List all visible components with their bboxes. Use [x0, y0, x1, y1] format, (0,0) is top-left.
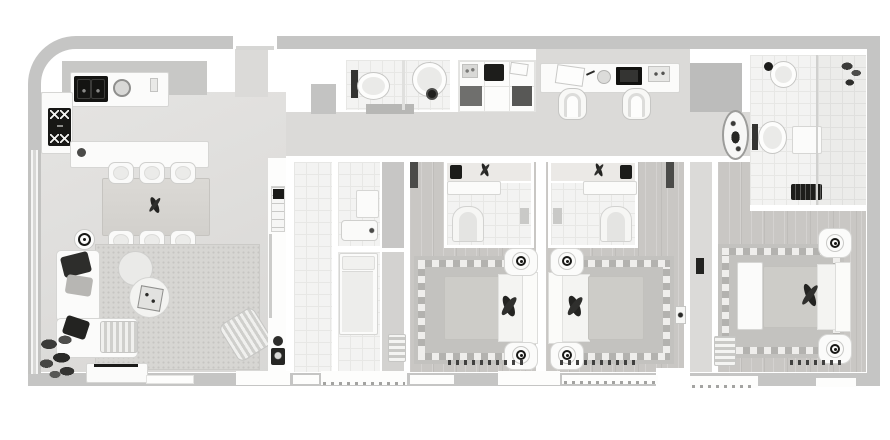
ensuite1-decor	[478, 164, 492, 176]
master-wall-switch	[696, 258, 704, 274]
dining-chair	[108, 162, 134, 184]
cooktop	[48, 108, 71, 146]
window-sill	[816, 378, 856, 387]
dining-chair	[170, 162, 196, 184]
bed2-flower-decor	[564, 294, 586, 318]
guest-toilet	[357, 72, 390, 100]
ensuite2-toilet	[600, 206, 632, 242]
bedroom2-wall-mirror	[666, 162, 674, 188]
floor-plan	[0, 0, 890, 440]
corridor-floor	[286, 112, 536, 156]
entry-floor	[235, 49, 268, 97]
master-foot-runner	[790, 360, 844, 365]
bed1-lamp-top	[512, 252, 530, 270]
window-sill	[410, 375, 454, 384]
bath-divider	[402, 60, 405, 110]
closet-small-items	[462, 64, 478, 78]
master-ladder-shelf	[714, 336, 736, 366]
closet-box-gray	[460, 86, 482, 106]
burner-icon	[60, 134, 69, 143]
bed1-flower-decor	[498, 294, 520, 318]
desk-laptop	[616, 67, 642, 85]
kitchen-small-item	[150, 78, 158, 92]
master-bath-wall	[750, 205, 866, 211]
sofa-pillow-gray	[65, 274, 94, 297]
living-plant	[34, 328, 84, 382]
sofa-ottoman	[100, 321, 138, 353]
ensuite2-sink	[620, 165, 632, 179]
window-sill	[236, 371, 290, 385]
master-bedside-bench	[737, 262, 763, 330]
bath-doormat	[366, 104, 414, 114]
sliding-door-track	[269, 234, 272, 318]
bed1-foot-runner	[448, 360, 528, 365]
shower-glass	[816, 55, 818, 205]
decor-tray	[137, 285, 164, 312]
desk-tray	[648, 66, 670, 82]
service-shaft	[690, 63, 742, 112]
guest-dark-stool	[426, 88, 438, 100]
desk-papers	[555, 64, 585, 87]
kitchen-sink	[74, 76, 108, 102]
burner-icon	[50, 134, 59, 143]
maid-bathtub	[341, 220, 378, 241]
master-basin	[770, 61, 797, 88]
maid-bed-blanket	[342, 271, 373, 332]
terrace-break	[656, 368, 690, 388]
window-sill	[293, 375, 319, 384]
shower-plants	[838, 56, 864, 90]
floor-lamp	[74, 229, 95, 250]
ensuite2-towel	[553, 208, 562, 224]
window-mullions	[692, 385, 756, 388]
table-centerpiece	[146, 197, 163, 213]
wall-device-box	[271, 348, 285, 365]
window-mullions	[564, 381, 656, 384]
island-faucet	[77, 148, 86, 157]
bedroom1-wall-mirror	[410, 162, 418, 188]
wall-device-round	[273, 336, 283, 346]
cooktop-control	[57, 125, 63, 127]
bed2-duvet	[588, 276, 644, 340]
ensuite1-towel	[520, 208, 529, 224]
master-lamp-top	[826, 234, 844, 252]
window-sill	[498, 371, 560, 385]
ensuite2-cabinet	[583, 181, 637, 195]
closet-washer	[484, 64, 504, 81]
kitchen-round-burner	[113, 79, 131, 97]
basin-accessories	[764, 62, 773, 71]
master-headboard	[835, 262, 851, 332]
burner-icon	[60, 110, 69, 119]
electrical-panel	[271, 186, 285, 232]
rug-checker-border	[418, 267, 425, 353]
desk-chair	[558, 88, 587, 120]
closet-linen	[509, 62, 528, 76]
master-toilet	[758, 121, 787, 154]
desk-chair	[622, 88, 651, 120]
entry-threshold	[236, 46, 274, 50]
bed1-duvet	[444, 276, 500, 340]
ensuite1-sink	[450, 165, 462, 179]
tv	[94, 364, 138, 367]
maid-vanity	[356, 190, 379, 218]
master-flower-decor	[798, 284, 822, 306]
closet-box-dark	[512, 86, 532, 106]
ensuite1-cabinet	[447, 181, 501, 195]
master-lamp-bottom	[826, 340, 844, 358]
rug-checker-border	[722, 255, 729, 347]
desk-round-item	[597, 70, 611, 84]
bed2-lamp-top	[558, 252, 576, 270]
wardrobe-strip-upper	[382, 162, 404, 248]
dining-chair	[139, 162, 165, 184]
window-mullions	[323, 382, 405, 385]
bedroom1-bench	[388, 334, 406, 362]
entry-shaft-block	[311, 84, 336, 114]
wall-thermostat	[675, 306, 686, 324]
ensuite1-toilet	[452, 206, 484, 242]
bed1-headboard	[522, 272, 538, 344]
window-sill	[146, 375, 194, 384]
utility-floor	[294, 162, 332, 372]
maid-bed-pillow	[342, 256, 375, 270]
burner-icon	[50, 110, 59, 119]
rug-checker-border	[663, 267, 670, 353]
freestanding-tub	[722, 110, 749, 160]
bed2-foot-runner	[560, 360, 640, 365]
ensuite2-decor	[592, 164, 606, 176]
